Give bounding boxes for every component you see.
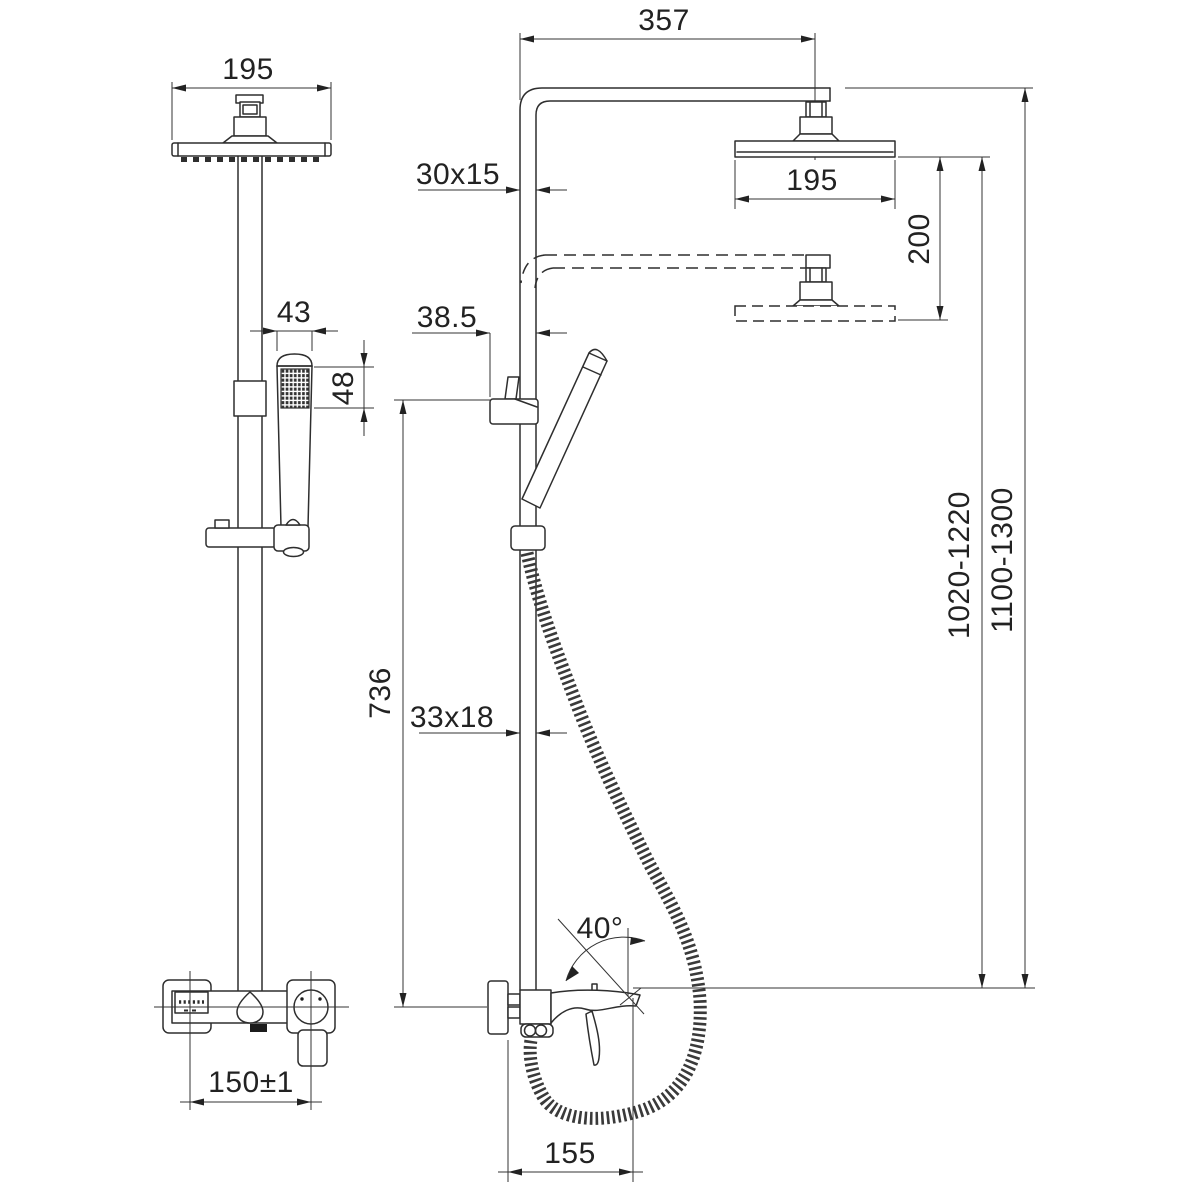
holder-offset-label: 38.5: [417, 301, 477, 334]
slide-rail-front: [234, 156, 266, 991]
dim-upper-pipe-profile: 30x15: [416, 158, 567, 194]
height-adjustment-label: 200: [903, 213, 936, 265]
hand-shower-side: [490, 349, 607, 550]
rail-slider-side: [511, 526, 545, 550]
shower-head-front: [172, 143, 331, 156]
front-view: 195 43 48: [154, 53, 374, 1110]
spray-face-height-label: 48: [327, 371, 360, 405]
dim-lower-pipe-profile: 33x18: [410, 701, 567, 737]
spray-face-grid: [281, 369, 309, 408]
hand-shower-front: [277, 354, 312, 527]
dim-spray-face-height: 48: [314, 340, 374, 436]
dim-supply-centers: 150±1: [180, 1066, 322, 1106]
mixer-body-side: [520, 990, 551, 1024]
overhead-shower-side: [735, 102, 895, 157]
hose-connection-offset-label: 155: [544, 1137, 596, 1170]
dim-hand-shower-width: 43: [250, 296, 338, 351]
arm-reach-label: 357: [638, 4, 690, 37]
dim-hose-connection-offset: 155: [498, 998, 643, 1182]
shower-head-side: [735, 141, 895, 157]
lever-blade: [586, 1011, 600, 1065]
overall-height-range-label: 1100-1300: [986, 487, 1019, 633]
overhead-shower-lowered-position: [521, 255, 895, 321]
supply-centers-label: 150±1: [208, 1066, 294, 1099]
rail-length-label: 736: [364, 667, 397, 719]
upper-pipe-profile-label: 30x15: [416, 158, 500, 191]
handle-angle-label: 40°: [577, 912, 624, 945]
dim-holder-offset: 38.5: [412, 301, 567, 397]
overhead-shower-front: [172, 95, 331, 160]
lower-pipe-profile-label: 33x18: [410, 701, 494, 734]
dim-rail-height-range: 1020-1220: [943, 157, 986, 988]
rail-coupler: [234, 381, 266, 416]
holder-bracket-side: [490, 399, 538, 424]
side-view: 357 195: [364, 4, 1035, 1182]
hand-shower-width-label: 43: [277, 296, 311, 329]
mixer-valve-side: [488, 981, 640, 1065]
head-width-label: 195: [222, 53, 274, 86]
head-depth-label: 195: [786, 164, 838, 197]
dim-head-depth: 195: [735, 160, 895, 209]
wall-flange: [488, 981, 508, 1034]
shower-system-technical-drawing: 195 43 48: [0, 0, 1200, 1200]
drawing-sheet: 195 43 48: [0, 0, 1200, 1200]
riser-and-arm-side: [520, 88, 830, 990]
holder-tab: [505, 377, 519, 399]
dim-height-adjustment: 200: [898, 157, 990, 320]
dim-arm-reach: 357: [520, 4, 815, 160]
lever-handle-front: [298, 1030, 327, 1066]
rail-height-range-label: 1020-1220: [943, 491, 976, 639]
rail-slider-front: [206, 520, 309, 557]
outlet-mark: [250, 1024, 267, 1032]
